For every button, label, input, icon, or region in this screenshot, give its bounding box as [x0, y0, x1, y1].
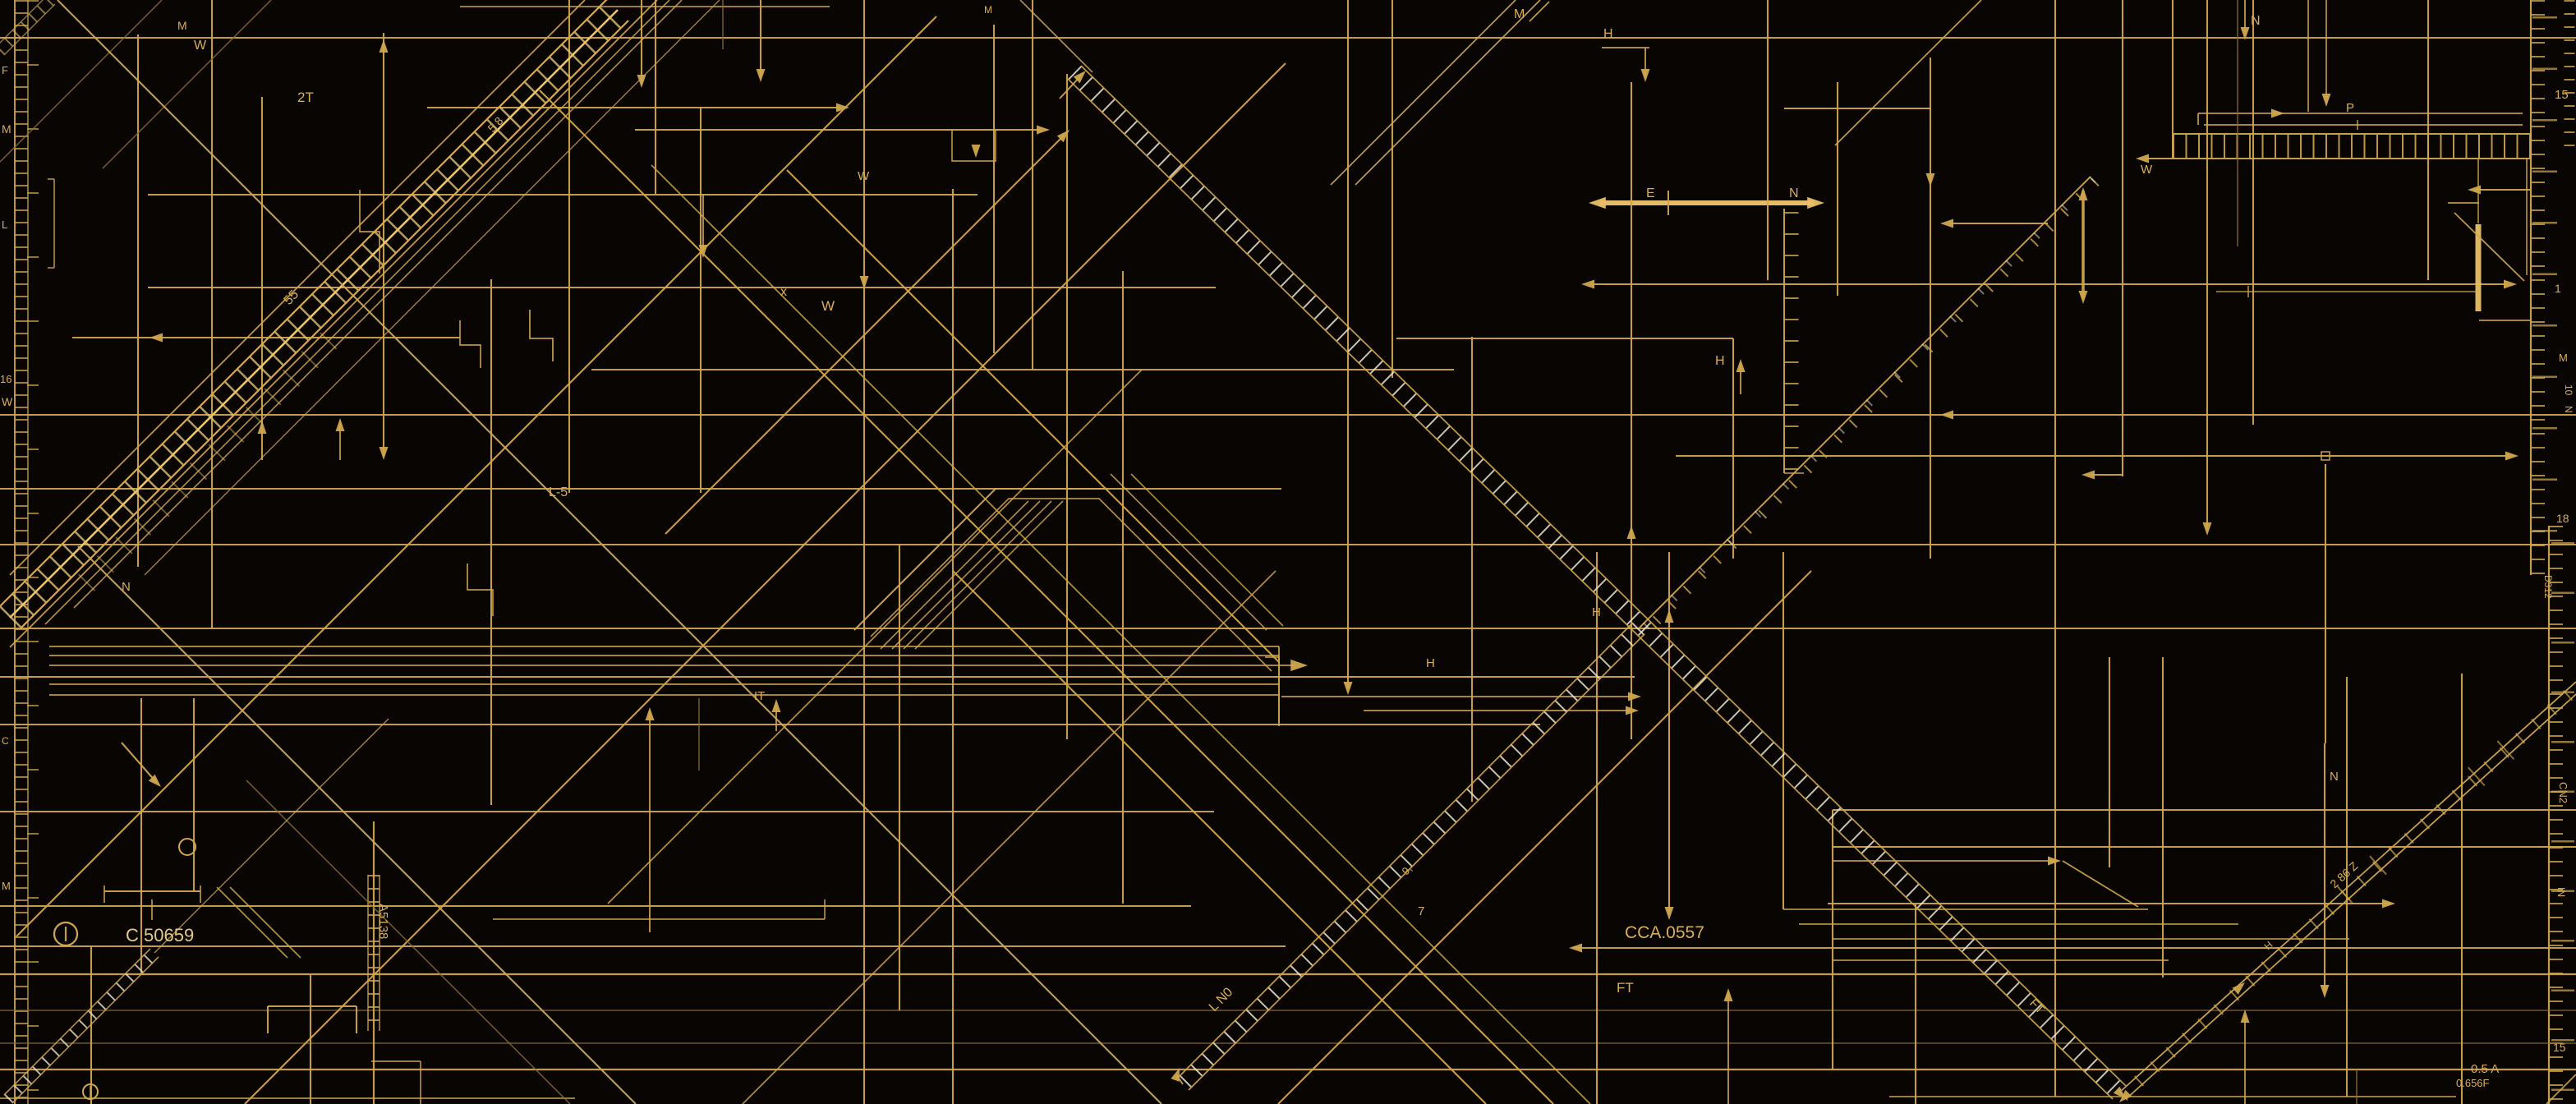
- svg-text:10: 10: [2563, 384, 2574, 396]
- svg-text:D312: D312: [2542, 575, 2554, 599]
- svg-text:M: M: [2559, 352, 2568, 364]
- svg-text:C: C: [2, 735, 9, 747]
- svg-text:0.5 A: 0.5 A: [2471, 1062, 2499, 1076]
- svg-text:M: M: [2, 880, 11, 892]
- svg-text:C 50659: C 50659: [126, 925, 194, 945]
- svg-text:IN: IN: [2555, 887, 2567, 897]
- svg-text:E: E: [1646, 186, 1655, 200]
- svg-text:H: H: [1715, 354, 1725, 368]
- svg-text:N: N: [1789, 186, 1799, 200]
- svg-text:N: N: [2563, 406, 2574, 413]
- svg-text:N: N: [2330, 770, 2339, 784]
- svg-text:IT: IT: [754, 689, 765, 703]
- svg-text:A5138: A5138: [376, 904, 390, 939]
- svg-text:W: W: [194, 39, 207, 53]
- svg-text:M: M: [2, 122, 11, 136]
- svg-text:2T: 2T: [297, 90, 314, 105]
- svg-text:16: 16: [0, 373, 11, 385]
- svg-text:15: 15: [2555, 88, 2569, 102]
- svg-text:M: M: [177, 19, 187, 32]
- svg-text:W: W: [2, 395, 13, 408]
- svg-text:H: H: [1603, 27, 1613, 41]
- svg-text:W: W: [2141, 163, 2153, 177]
- svg-text:FT: FT: [1617, 980, 1634, 996]
- svg-text:W: W: [821, 298, 835, 314]
- svg-text:x̄: x̄: [780, 285, 787, 299]
- svg-text:CN2: CN2: [2557, 782, 2569, 803]
- svg-text:W: W: [858, 169, 870, 183]
- svg-text:H: H: [1426, 656, 1435, 670]
- svg-text:CCA.0557: CCA.0557: [1625, 923, 1704, 942]
- svg-text:H: H: [1592, 605, 1601, 619]
- svg-text:P: P: [2346, 101, 2354, 115]
- svg-text:7: 7: [1418, 904, 1424, 918]
- svg-text:M: M: [1514, 7, 1525, 21]
- svg-text:N: N: [2251, 14, 2261, 28]
- svg-text:L: L: [2, 218, 7, 231]
- svg-text:M: M: [984, 4, 992, 16]
- svg-text:0.656F: 0.656F: [2456, 1077, 2490, 1089]
- svg-text:F: F: [2, 64, 8, 76]
- svg-text:N: N: [122, 580, 131, 594]
- svg-text:18: 18: [2556, 512, 2569, 525]
- svg-text:15: 15: [2553, 1041, 2566, 1054]
- svg-text:1: 1: [2555, 282, 2561, 295]
- svg-text:L-5: L-5: [549, 485, 568, 499]
